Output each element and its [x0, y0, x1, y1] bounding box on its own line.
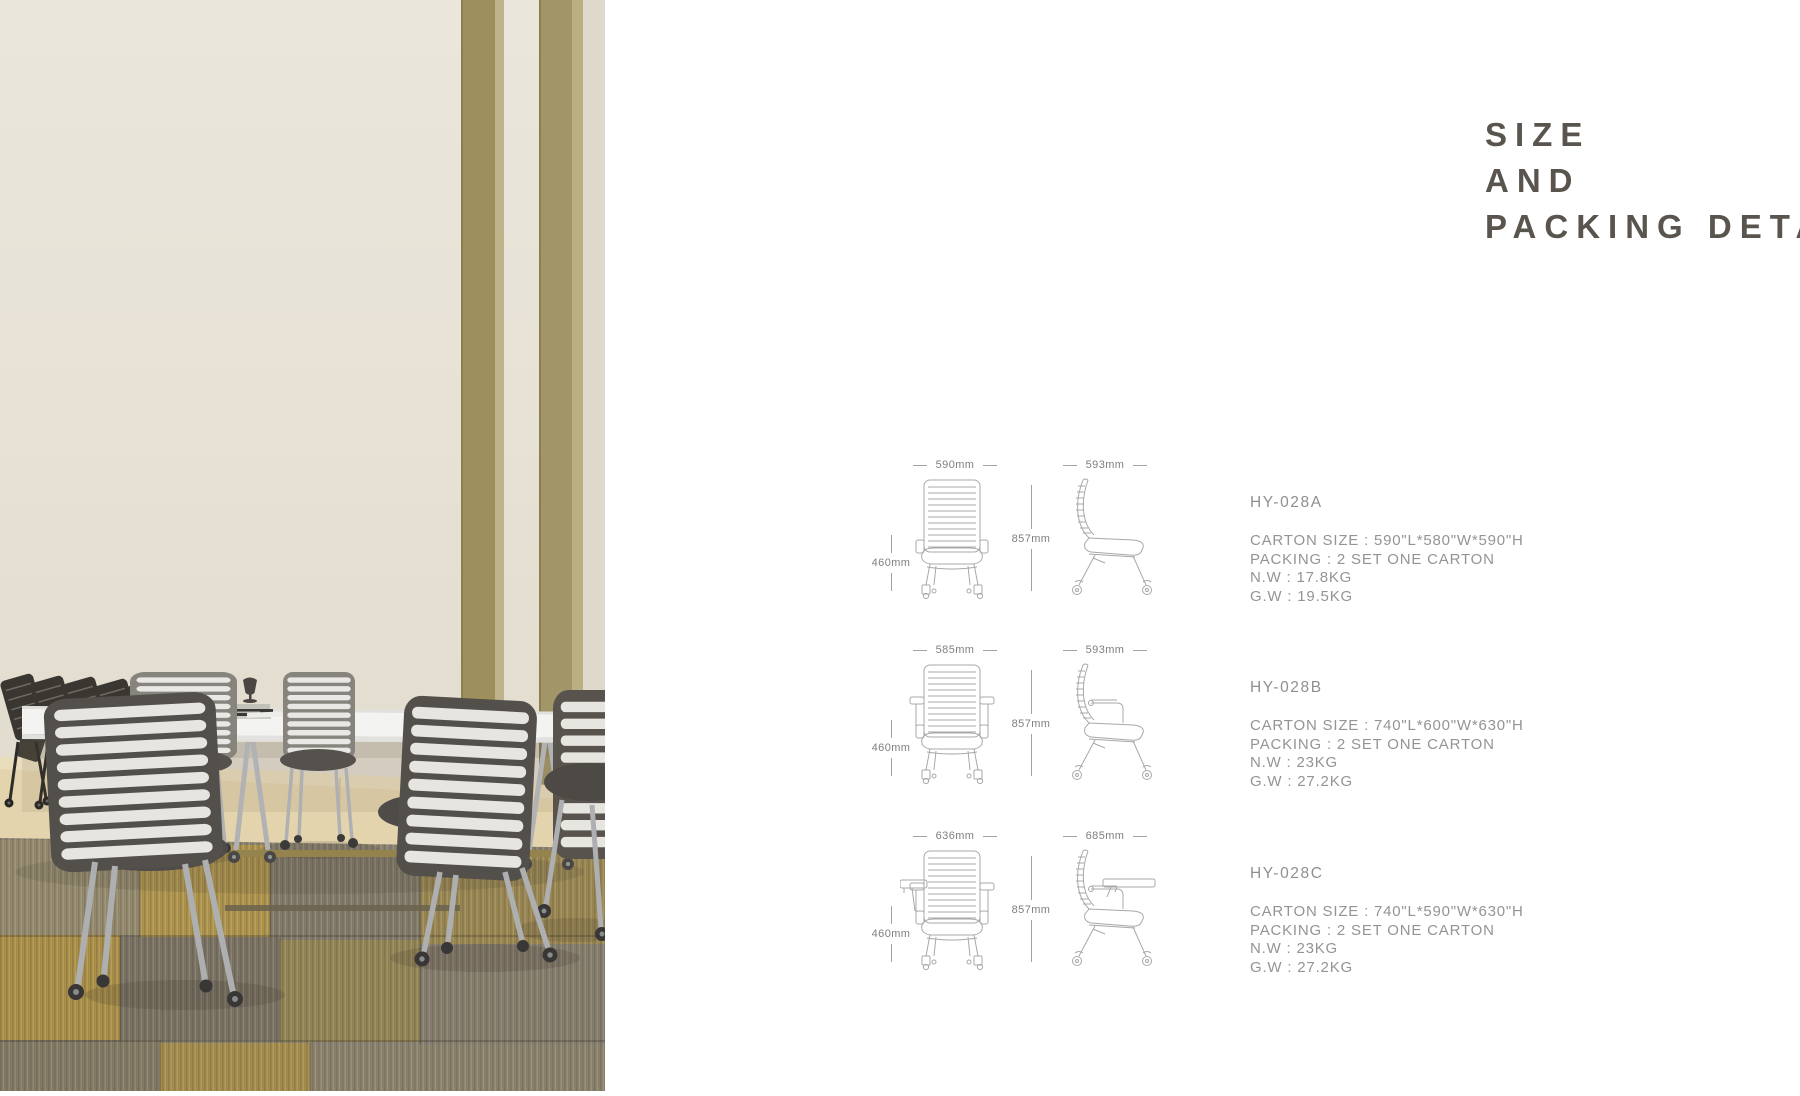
dimension-line [1031, 549, 1032, 591]
dimension-line [891, 758, 892, 776]
side-width-label: 593mm [1086, 644, 1125, 656]
net-weight: N.W : 17.8KG [1250, 569, 1524, 588]
dimension-dash [983, 650, 997, 651]
dimension-line [1031, 670, 1032, 714]
dimension-line [891, 906, 892, 924]
seat-height-label: 460mm [872, 557, 911, 569]
page-title-line-1: SIZE [1485, 112, 1800, 158]
gross-weight: G.W : 27.2KG [1250, 773, 1524, 792]
packing: PACKING : 2 SET ONE CARTON [1250, 922, 1524, 941]
product-specs: HY-028C CARTON SIZE : 740"L*590"W*630"H … [1250, 865, 1524, 977]
packing: PACKING : 2 SET ONE CARTON [1250, 551, 1524, 570]
dimension-line [891, 535, 892, 553]
dimension-dash [913, 650, 927, 651]
carton-size: CARTON SIZE : 740"L*590"W*630"H [1250, 903, 1524, 922]
page-title: SIZE AND PACKING DETAILS [1485, 112, 1800, 250]
product-model: HY-028B [1250, 679, 1524, 697]
seat-height-dimension: 460mm [856, 906, 926, 962]
dimension-line [891, 944, 892, 962]
front-width-dimension: 636mm [885, 829, 1025, 843]
carton-size: CARTON SIZE : 740"L*600"W*630"H [1250, 717, 1524, 736]
dimension-dash [913, 465, 927, 466]
seat-height-label: 460mm [872, 742, 911, 754]
front-width-label: 590mm [936, 459, 975, 471]
net-weight: N.W : 23KG [1250, 940, 1524, 959]
side-width-dimension: 593mm [1035, 643, 1175, 657]
product-group-hy028b: 585mm 593mm 857mm 460mm HY-028B CARTON S… [0, 643, 1800, 833]
seat-height-dimension: 460mm [856, 535, 926, 591]
gross-weight: G.W : 19.5KG [1250, 588, 1524, 607]
dimension-line [1031, 856, 1032, 900]
dimension-dash [1133, 465, 1147, 466]
dimension-dash [1063, 465, 1077, 466]
gross-weight: G.W : 27.2KG [1250, 959, 1524, 978]
dimension-line [1031, 485, 1032, 529]
front-width-dimension: 585mm [885, 643, 1025, 657]
carton-size: CARTON SIZE : 590"L*580"W*590"H [1250, 532, 1524, 551]
dimension-dash [1063, 650, 1077, 651]
catalog-page: { "title": { "lines": ["SIZE", "AND", "P… [0, 0, 1800, 1091]
product-specs: HY-028A CARTON SIZE : 590"L*580"W*590"H … [1250, 494, 1524, 606]
chair-side-view-drawing [1045, 663, 1160, 785]
dimension-dash [983, 465, 997, 466]
dimension-line [1031, 734, 1032, 776]
product-group-hy028a: 590mm 593mm 857mm 460mm HY-028A CARTON S… [0, 458, 1800, 648]
front-width-dimension: 590mm [885, 458, 1025, 472]
dimension-dash [1133, 836, 1147, 837]
product-specs: HY-028B CARTON SIZE : 740"L*600"W*630"H … [1250, 679, 1524, 791]
seat-height-label: 460mm [872, 928, 911, 940]
page-title-line-3: PACKING DETAILS [1485, 204, 1800, 250]
chair-side-view-drawing [1045, 849, 1160, 971]
front-width-label: 636mm [936, 830, 975, 842]
dimension-dash [1133, 650, 1147, 651]
side-width-dimension: 685mm [1035, 829, 1175, 843]
net-weight: N.W : 23KG [1250, 754, 1524, 773]
side-width-dimension: 593mm [1035, 458, 1175, 472]
dimension-dash [983, 836, 997, 837]
page-title-line-2: AND [1485, 158, 1800, 204]
front-width-label: 585mm [936, 644, 975, 656]
product-group-hy028c: 636mm 685mm 857mm 460mm HY-028C CARTON S… [0, 829, 1800, 1019]
dimension-line [891, 720, 892, 738]
product-model: HY-028A [1250, 494, 1524, 512]
packing: PACKING : 2 SET ONE CARTON [1250, 736, 1524, 755]
side-width-label: 593mm [1086, 459, 1125, 471]
product-model: HY-028C [1250, 865, 1524, 883]
dimension-line [1031, 920, 1032, 962]
chair-side-view-drawing [1045, 478, 1160, 600]
dimension-line [891, 573, 892, 591]
dimension-dash [1063, 836, 1077, 837]
seat-height-dimension: 460mm [856, 720, 926, 776]
dimension-dash [913, 836, 927, 837]
side-width-label: 685mm [1086, 830, 1125, 842]
